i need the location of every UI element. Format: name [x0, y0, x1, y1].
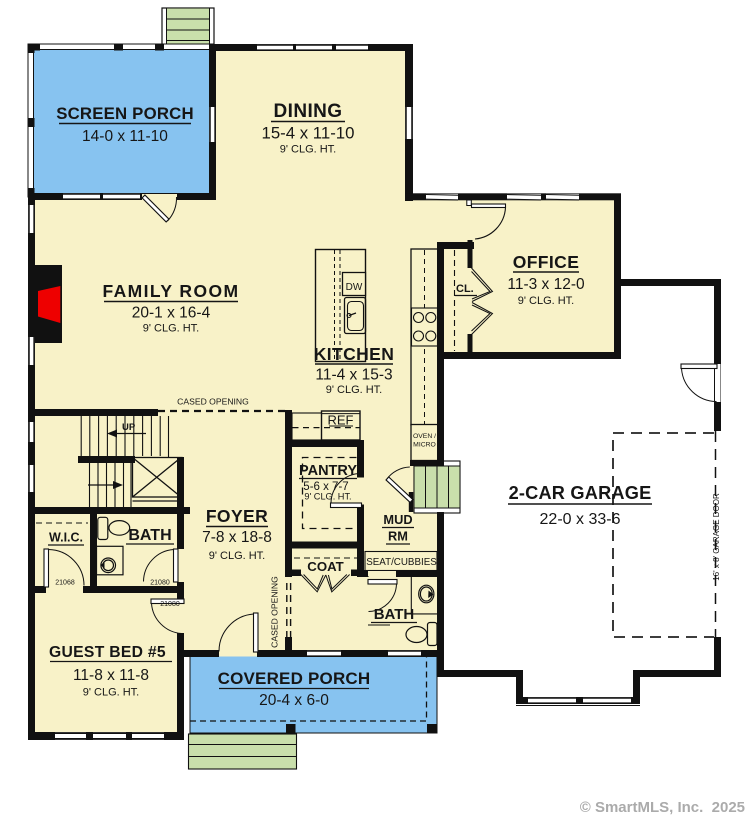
svg-text:9' CLG. HT.: 9' CLG. HT. — [143, 323, 200, 335]
svg-text:BATH: BATH — [128, 527, 171, 544]
svg-text:CL.: CL. — [456, 283, 474, 295]
svg-text:11-8 x 11-8: 11-8 x 11-8 — [73, 667, 149, 684]
svg-text:COVERED PORCH: COVERED PORCH — [218, 669, 371, 688]
svg-text:21080: 21080 — [160, 601, 180, 608]
svg-text:SCREEN PORCH: SCREEN PORCH — [56, 104, 194, 123]
svg-text:11-4 x 15-3: 11-4 x 15-3 — [315, 367, 392, 384]
svg-text:2-CAR GARAGE: 2-CAR GARAGE — [509, 483, 652, 503]
svg-text:MICRO: MICRO — [413, 442, 436, 449]
svg-text:FAMILY ROOM: FAMILY ROOM — [103, 281, 240, 301]
svg-text:PANTRY: PANTRY — [299, 463, 357, 479]
svg-text:20-1 x 16-4: 20-1 x 16-4 — [132, 305, 211, 322]
svg-text:DW: DW — [346, 282, 363, 293]
svg-text:14-0 x 11-10: 14-0 x 11-10 — [82, 128, 168, 145]
svg-text:OFFICE: OFFICE — [513, 252, 580, 272]
svg-text:CASED OPENING: CASED OPENING — [270, 576, 280, 648]
svg-text:9' CLG. HT.: 9' CLG. HT. — [326, 384, 383, 396]
svg-text:11-3 x 12-0: 11-3 x 12-0 — [507, 276, 585, 293]
svg-text:9' CLG. HT.: 9' CLG. HT. — [280, 144, 337, 156]
svg-text:DINING: DINING — [274, 101, 343, 122]
svg-text:KITCHEN: KITCHEN — [314, 344, 395, 364]
svg-text:W.I.C.: W.I.C. — [49, 531, 83, 545]
svg-text:MUD: MUD — [383, 512, 412, 527]
svg-text:UP: UP — [122, 422, 136, 433]
svg-text:COAT: COAT — [307, 559, 343, 574]
svg-text:SEAT/CUBBIES: SEAT/CUBBIES — [366, 557, 437, 568]
svg-text:16' x 8' GARAGE DOOR: 16' x 8' GARAGE DOOR — [712, 493, 721, 581]
svg-text:20-4 x 6-0: 20-4 x 6-0 — [259, 692, 329, 709]
svg-text:GUEST BED #5: GUEST BED #5 — [49, 644, 166, 661]
svg-text:OVEN /: OVEN / — [413, 433, 436, 440]
svg-text:21080: 21080 — [150, 580, 170, 587]
svg-text:9' CLG. HT.: 9' CLG. HT. — [209, 550, 266, 562]
svg-text:RM: RM — [388, 529, 408, 544]
svg-text:© SmartMLS, Inc. 2025: © SmartMLS, Inc. 2025 — [580, 799, 745, 816]
svg-text:REF: REF — [328, 413, 354, 428]
svg-text:15-4 x 11-10: 15-4 x 11-10 — [262, 124, 355, 143]
svg-text:7-8 x 18-8: 7-8 x 18-8 — [202, 529, 272, 546]
svg-text:CASED OPENING: CASED OPENING — [177, 397, 249, 407]
svg-text:21068: 21068 — [55, 580, 75, 587]
svg-text:9' CLG. HT.: 9' CLG. HT. — [83, 687, 140, 699]
svg-text:FOYER: FOYER — [206, 506, 268, 526]
svg-text:9' CLG. HT.: 9' CLG. HT. — [518, 295, 575, 307]
svg-text:22-0 x 33-6: 22-0 x 33-6 — [540, 511, 621, 528]
svg-text:BATH: BATH — [374, 606, 415, 623]
svg-text:9' CLG. HT.: 9' CLG. HT. — [304, 492, 351, 502]
